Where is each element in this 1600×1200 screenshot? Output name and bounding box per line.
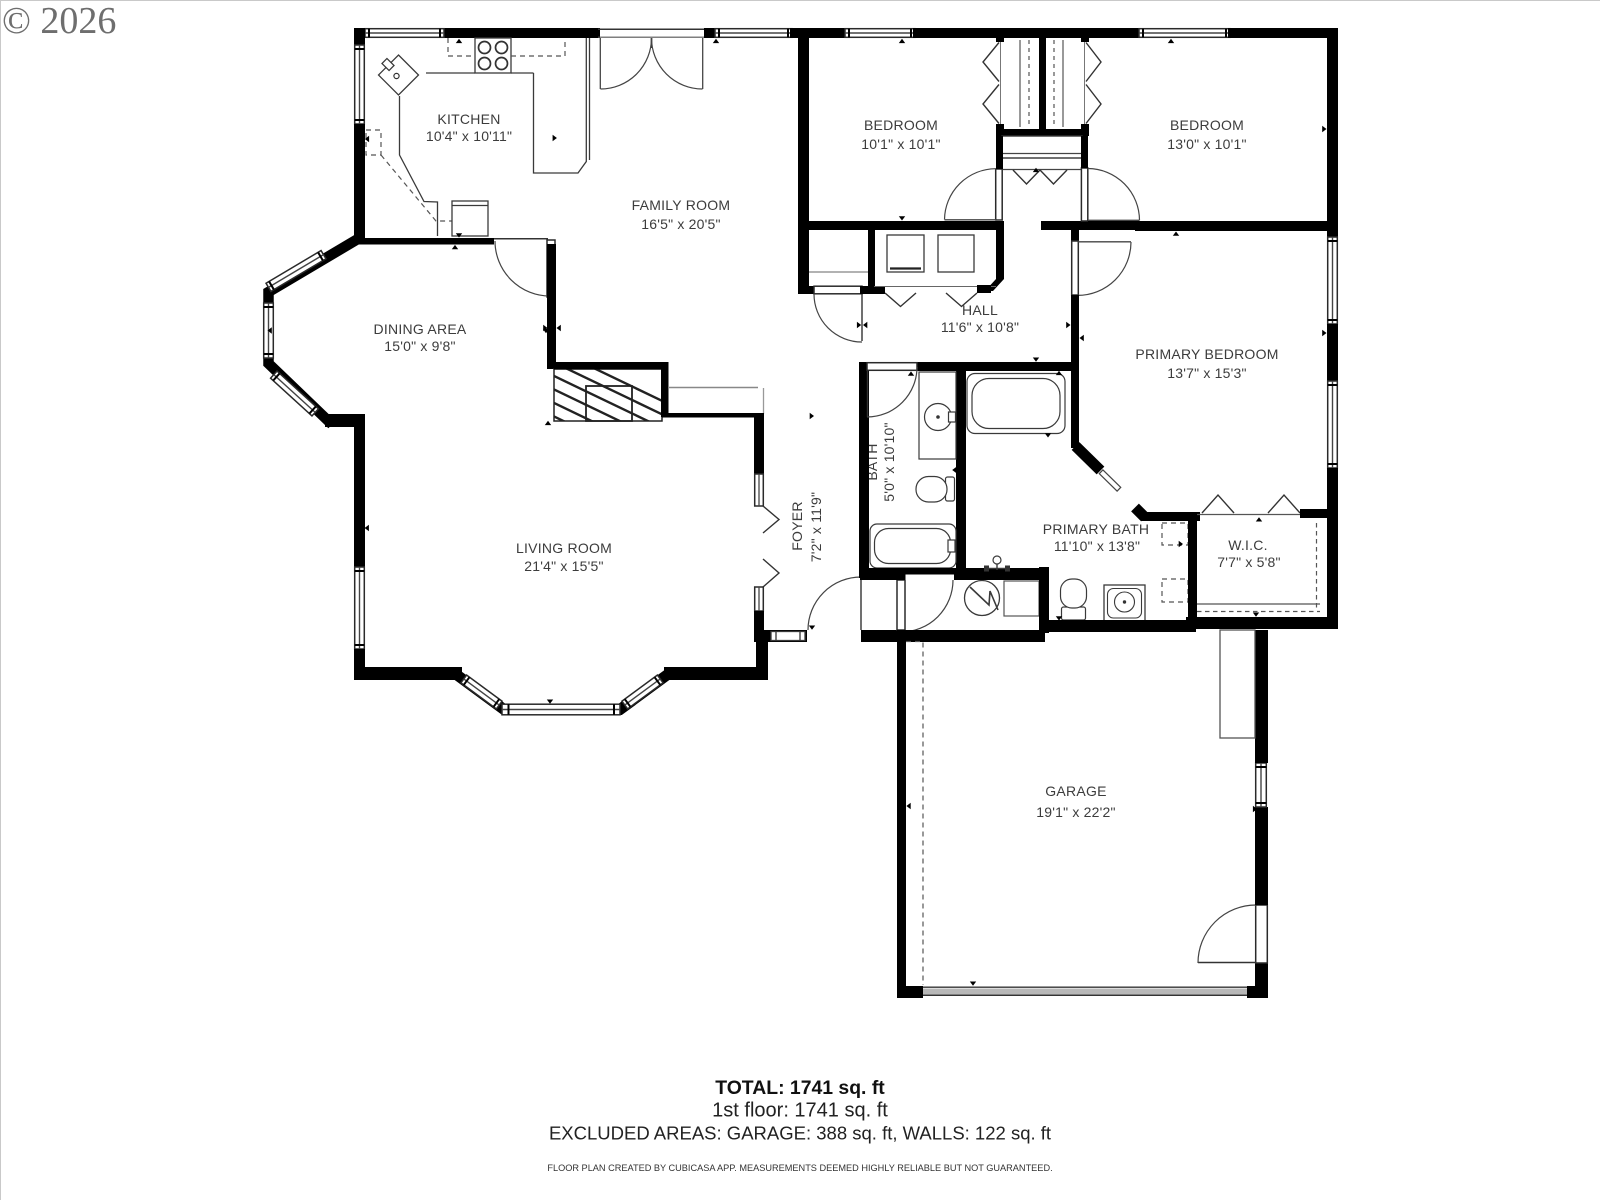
svg-text:11'6" x 10'8": 11'6" x 10'8" xyxy=(941,319,1019,335)
svg-text:FLOOR PLAN CREATED BY CUBICASA: FLOOR PLAN CREATED BY CUBICASA APP. MEAS… xyxy=(547,1163,1052,1173)
svg-text:1st floor: 1741 sq. ft: 1st floor: 1741 sq. ft xyxy=(712,1100,888,1122)
svg-text:HALL: HALL xyxy=(962,302,998,318)
svg-text:7'7" x 5'8": 7'7" x 5'8" xyxy=(1217,554,1280,570)
svg-text:DINING AREA: DINING AREA xyxy=(374,321,467,337)
svg-text:W.I.C.: W.I.C. xyxy=(1228,537,1268,553)
svg-text:5'0" x 10'10": 5'0" x 10'10" xyxy=(881,422,897,501)
svg-text:21'4" x 15'5": 21'4" x 15'5" xyxy=(524,558,603,574)
svg-text:13'7" x 15'3": 13'7" x 15'3" xyxy=(1167,365,1246,381)
svg-text:13'0" x 10'1": 13'0" x 10'1" xyxy=(1167,136,1246,152)
svg-text:15'0" x 9'8": 15'0" x 9'8" xyxy=(384,338,455,354)
svg-text:BEDROOM: BEDROOM xyxy=(864,117,938,133)
svg-text:GARAGE: GARAGE xyxy=(1045,783,1106,799)
svg-text:LIVING ROOM: LIVING ROOM xyxy=(516,540,612,556)
svg-text:7'2" x 11'9": 7'2" x 11'9" xyxy=(808,492,824,562)
svg-text:FAMILY ROOM: FAMILY ROOM xyxy=(632,197,731,213)
svg-text:EXCLUDED AREAS: GARAGE: 388 sq: EXCLUDED AREAS: GARAGE: 388 sq. ft, WALL… xyxy=(549,1123,1051,1144)
svg-text:PRIMARY BATH: PRIMARY BATH xyxy=(1043,521,1149,537)
svg-text:FOYER: FOYER xyxy=(789,501,805,550)
svg-text:PRIMARY BEDROOM: PRIMARY BEDROOM xyxy=(1135,346,1278,362)
svg-text:KITCHEN: KITCHEN xyxy=(437,111,500,127)
svg-text:TOTAL: 1741 sq. ft: TOTAL: 1741 sq. ft xyxy=(715,1077,885,1099)
svg-text:10'4" x 10'11": 10'4" x 10'11" xyxy=(426,128,512,144)
svg-text:10'1" x 10'1": 10'1" x 10'1" xyxy=(861,136,940,152)
svg-text:© 2026: © 2026 xyxy=(2,0,116,42)
svg-text:BEDROOM: BEDROOM xyxy=(1170,117,1244,133)
svg-text:16'5" x 20'5": 16'5" x 20'5" xyxy=(641,216,720,232)
svg-text:11'10" x 13'8": 11'10" x 13'8" xyxy=(1054,538,1140,554)
svg-text:19'1" x 22'2": 19'1" x 22'2" xyxy=(1036,804,1115,820)
